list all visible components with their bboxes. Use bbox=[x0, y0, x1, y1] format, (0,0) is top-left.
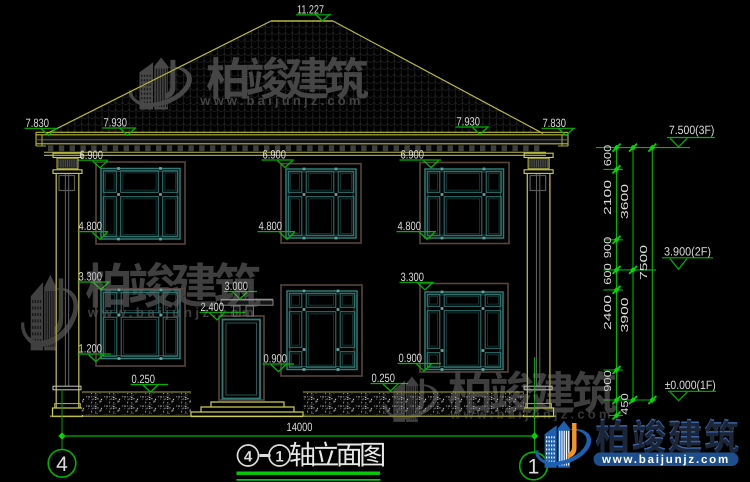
svg-text:±0.000(1F): ±0.000(1F) bbox=[665, 378, 716, 392]
svg-text:7500: 7500 bbox=[639, 244, 650, 280]
svg-text:3900: 3900 bbox=[620, 297, 631, 333]
svg-text:www.baijunjz.com: www.baijunjz.com bbox=[449, 407, 613, 422]
svg-text:1: 1 bbox=[528, 456, 540, 479]
svg-text:4: 4 bbox=[244, 449, 253, 466]
svg-text:4: 4 bbox=[56, 453, 68, 476]
svg-text:1: 1 bbox=[275, 449, 283, 466]
svg-text:2100: 2100 bbox=[603, 179, 614, 215]
svg-text:2400: 2400 bbox=[603, 294, 614, 330]
svg-text:4.800: 4.800 bbox=[259, 219, 283, 233]
svg-text:450: 450 bbox=[620, 393, 631, 415]
svg-text:3.900(2F): 3.900(2F) bbox=[664, 244, 711, 258]
svg-text:600: 600 bbox=[603, 144, 614, 166]
svg-text:4.800: 4.800 bbox=[398, 219, 422, 233]
svg-text:4.800: 4.800 bbox=[79, 219, 103, 233]
svg-text:3600: 3600 bbox=[620, 183, 631, 219]
svg-text:www.baijunjz.com: www.baijunjz.com bbox=[199, 93, 363, 108]
svg-text:900: 900 bbox=[603, 236, 614, 258]
svg-text:7.500(3F): 7.500(3F) bbox=[669, 123, 715, 137]
svg-text:www.baijunjz.com: www.baijunjz.com bbox=[601, 454, 730, 466]
svg-text:14000: 14000 bbox=[287, 420, 313, 434]
svg-text:www.baijunjz.com: www.baijunjz.com bbox=[87, 305, 257, 320]
svg-text:600: 600 bbox=[603, 263, 614, 285]
